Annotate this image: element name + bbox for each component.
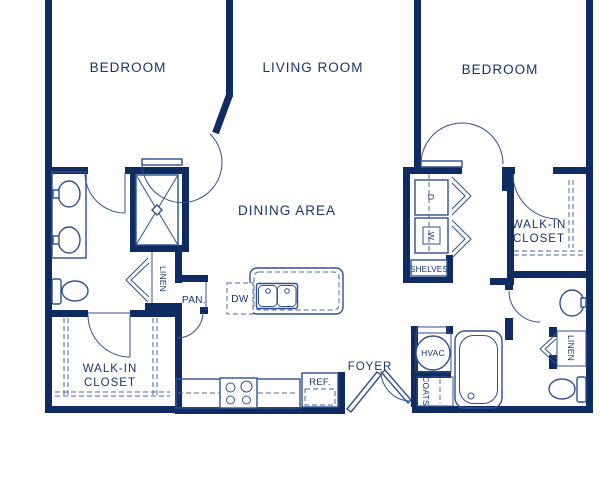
linen-closet-left: LINEN [126, 252, 168, 303]
vanity-counter [52, 172, 86, 258]
bathroom-right: LINEN [455, 290, 586, 408]
door-arc [88, 315, 130, 357]
door-leaf [421, 161, 462, 167]
door-leaf [382, 370, 411, 403]
bedroom-left-label: BEDROOM [90, 60, 167, 75]
bedroom-right-label: BEDROOM [462, 62, 539, 77]
washer-label: W [426, 232, 436, 240]
dryer-label: D [426, 194, 436, 200]
laundry-closet: D W SHELVES [410, 174, 471, 276]
bathtub [455, 331, 502, 408]
shower-drain [152, 205, 162, 215]
bedroom-right-door [421, 123, 503, 167]
entry-door [347, 370, 411, 412]
wic-right-label-2: CLOSET [513, 233, 565, 245]
dining-area-label: DINING AREA [238, 203, 336, 218]
toilet-bowl [549, 379, 575, 399]
sink-basin [58, 227, 80, 253]
door-arc [85, 173, 125, 213]
coats-label: COATS [421, 376, 431, 406]
shower [136, 175, 178, 245]
door-leaf [347, 372, 381, 412]
kitchen: REF. DW [176, 268, 343, 408]
wic-right-label-1: WALK-IN [512, 219, 567, 231]
walk-in-closet-right: WALK-IN CLOSET [512, 174, 584, 255]
dishwasher-label: DW [231, 294, 249, 305]
walk-in-closet-left: WALK-IN CLOSET [55, 313, 170, 396]
bifold-door [126, 258, 148, 302]
faucet-icon [53, 236, 59, 244]
door-arc [509, 291, 540, 322]
door-leaf [142, 159, 182, 165]
shelves-label: SHELVES [410, 265, 448, 274]
bathroom-left [52, 172, 125, 304]
toilet-tank [52, 279, 61, 304]
toilet-bowl [62, 281, 88, 301]
angled-wall [212, 94, 233, 134]
wic-left-label-1: WALK-IN [83, 363, 138, 375]
faucet-icon [53, 190, 59, 198]
wic-left-label-2: CLOSET [84, 377, 136, 389]
faucet-icon [581, 298, 586, 307]
stove [220, 378, 257, 408]
hvac-label: HVAC [421, 348, 445, 358]
vent [417, 327, 448, 333]
linen-left-label: LINEN [158, 266, 168, 292]
linen-right-label: LINEN [566, 335, 576, 361]
foyer-label: FOYER [348, 361, 393, 373]
tub-drain [468, 393, 474, 399]
bifold-door [452, 177, 471, 215]
door-arc [421, 123, 503, 164]
bifold-door [452, 220, 471, 258]
toilet-tank [577, 377, 586, 402]
hvac-closet: HVAC [416, 327, 451, 372]
living-room-label: LIVING ROOM [262, 60, 363, 75]
pantry-label: PAN. [182, 295, 206, 306]
bifold-door [131, 263, 149, 297]
bifold-door [452, 183, 465, 209]
sink-basin [58, 181, 80, 207]
floor-plan-drawing: LINEN PAN. WALK-IN CLOSET REF. [0, 0, 600, 490]
coats-closet: COATS [417, 376, 453, 406]
door-arc [513, 174, 558, 219]
floor-plan: LINEN PAN. WALK-IN CLOSET REF. [0, 0, 600, 490]
refrigerator-label: REF. [309, 377, 330, 388]
bifold-door [452, 226, 465, 252]
